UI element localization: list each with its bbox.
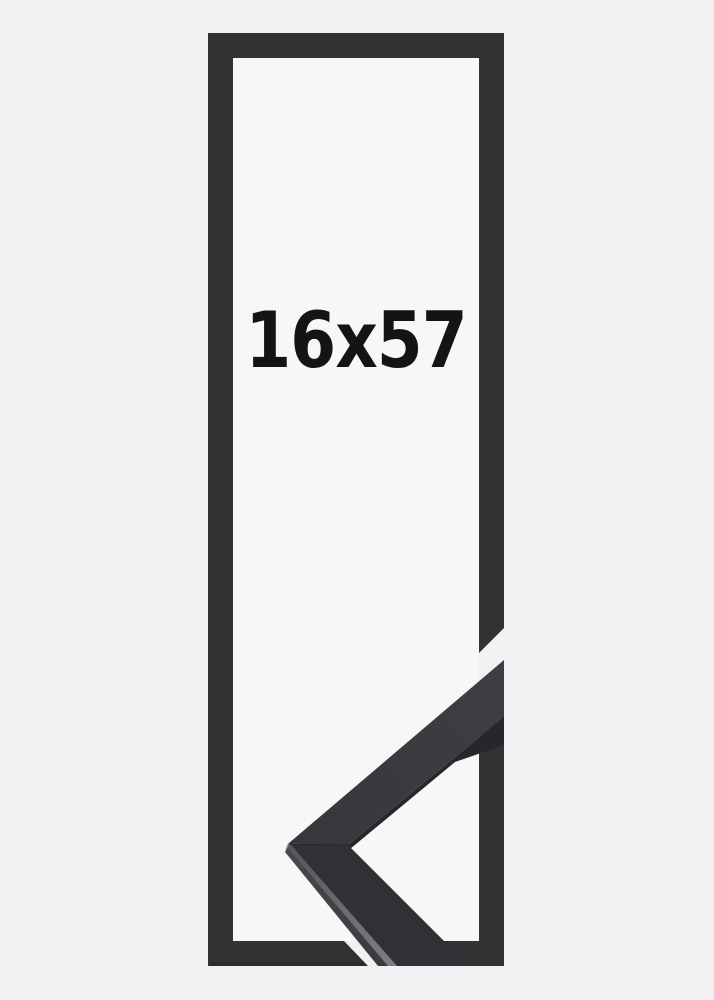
product-image: 16x57	[0, 0, 714, 1000]
frame-illustration	[0, 0, 714, 1000]
size-label: 16x57	[233, 263, 479, 419]
